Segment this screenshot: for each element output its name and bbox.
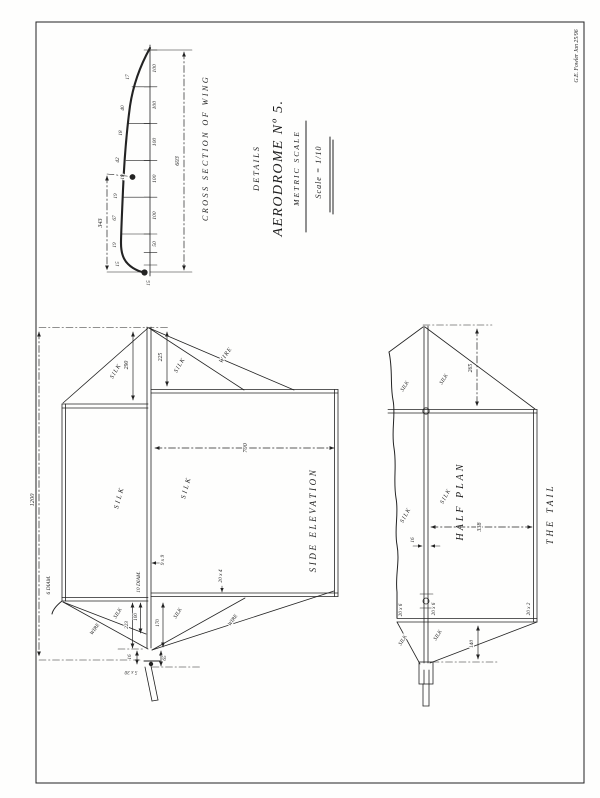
section-9x9-label: 9 x 9 (160, 554, 166, 565)
seg-label: 100 (152, 64, 158, 73)
silk-label: SILK (433, 629, 444, 642)
signature: G.E. Fowler Jan 25/96 (574, 29, 580, 82)
silk-label: SILK (173, 607, 184, 620)
chord-total-label: 603 (174, 156, 181, 166)
camber-label: 343 (97, 218, 104, 228)
tip-depth-label: 140 (469, 640, 475, 648)
half-plan-title: HALF PLAN (455, 462, 466, 542)
aerodrome-drawing: G.E. Fowler Jan 25/96 100 100 (0, 0, 600, 798)
half-span-label: 338 (477, 523, 483, 533)
section-20x6-label: 20 x 6 (398, 603, 404, 616)
title-aerodrome: AERODROME Nº 5. (271, 100, 286, 238)
ordinate: 19 (113, 193, 119, 199)
section-6diam-label: 6 DIAM. (46, 576, 52, 595)
silk-label: SILK (179, 475, 193, 499)
title-details: DETAILS (252, 145, 261, 192)
silk-label: SILK (400, 380, 411, 393)
silk-label: SILK (173, 357, 186, 374)
section-5x30-label: 5 x 30 (124, 669, 137, 675)
silk-label: SILK (439, 373, 450, 386)
chord-dimension: 603 (150, 50, 192, 272)
chord-station-ticks (122, 50, 158, 265)
seg-label: 100 (152, 211, 158, 220)
leading-edge-dot (141, 269, 147, 275)
side-elevation: 1200 290 225 (29, 327, 338, 701)
title-scale: Scale = 1/10 (314, 146, 323, 199)
wire-label: WIRE (227, 613, 240, 628)
seg-label: 15 (146, 280, 152, 286)
silk-label: SILK (113, 607, 124, 620)
ordinate: 67 (112, 215, 118, 221)
dim-170-label: 170 (155, 619, 161, 627)
ordinate: 19 (112, 242, 118, 248)
dim-16-label: 16 (127, 654, 133, 660)
ordinate: 15 (115, 261, 121, 267)
overall-length-label: 1200 (29, 493, 36, 507)
dim-223-label: 223 (124, 621, 130, 629)
rear-chord-label: 700 (242, 442, 249, 452)
camber-dimension: 343 (97, 174, 143, 272)
wire-label: WIRE (218, 346, 233, 364)
mast-foot-dot (149, 662, 153, 666)
drawing-sheet: G.E. Fowler Jan 25/96 100 100 (0, 0, 600, 798)
wire-label: WIRE (89, 622, 102, 637)
dim-65-label: 65 (162, 655, 168, 661)
silk-label: SILK (400, 507, 413, 524)
break-line (389, 352, 398, 618)
title-metric-scale: METRIC SCALE (292, 130, 301, 207)
silk-label: SILK (440, 488, 453, 505)
spar-width-label: 16 (410, 537, 416, 543)
seg-label: 50 (152, 241, 158, 247)
the-tail-title: THE TAIL (545, 483, 555, 544)
tail-boom (419, 662, 433, 706)
tail-depth-label: 265 (468, 364, 474, 373)
spar-dot (130, 174, 136, 180)
wing-section-title: CROSS SECTION OF WING (201, 75, 210, 221)
side-elevation-title: SIDE ELEVATION (308, 468, 318, 573)
section-10diam-label: 10 DIAM. (136, 571, 142, 593)
ordinate: 18 (118, 130, 124, 136)
king-post-front-label: 290 (124, 361, 130, 370)
wing-cross-section: 100 100 100 100 100 50 15 17 40 18 42 18… (97, 45, 210, 286)
ordinate: 18 (120, 174, 126, 180)
seg-label: 100 (152, 138, 158, 147)
half-plan: 265 SILK SILK HALF PLAN SILK SILK 338 16… (388, 325, 555, 706)
silk-label: SILK (109, 363, 122, 380)
dim-100-label: 100 (133, 613, 139, 621)
seg-label: 100 (152, 174, 158, 183)
king-post-rear-label: 225 (158, 353, 164, 362)
silk-label: SILK (112, 485, 126, 509)
seg-label: 100 (152, 101, 158, 110)
ordinate: 17 (125, 74, 131, 80)
ordinate: 42 (114, 157, 121, 163)
front-wing-panel (52, 404, 148, 614)
section-20x2-label: 20 x 2 (526, 602, 532, 615)
ordinate: 40 (119, 105, 126, 111)
title-block: DETAILS AERODROME Nº 5. METRIC SCALE Sca… (252, 100, 333, 238)
section-20x4-label: 20 x 4 (218, 569, 224, 582)
section-20x6-label: 20 x 6 (431, 602, 437, 615)
